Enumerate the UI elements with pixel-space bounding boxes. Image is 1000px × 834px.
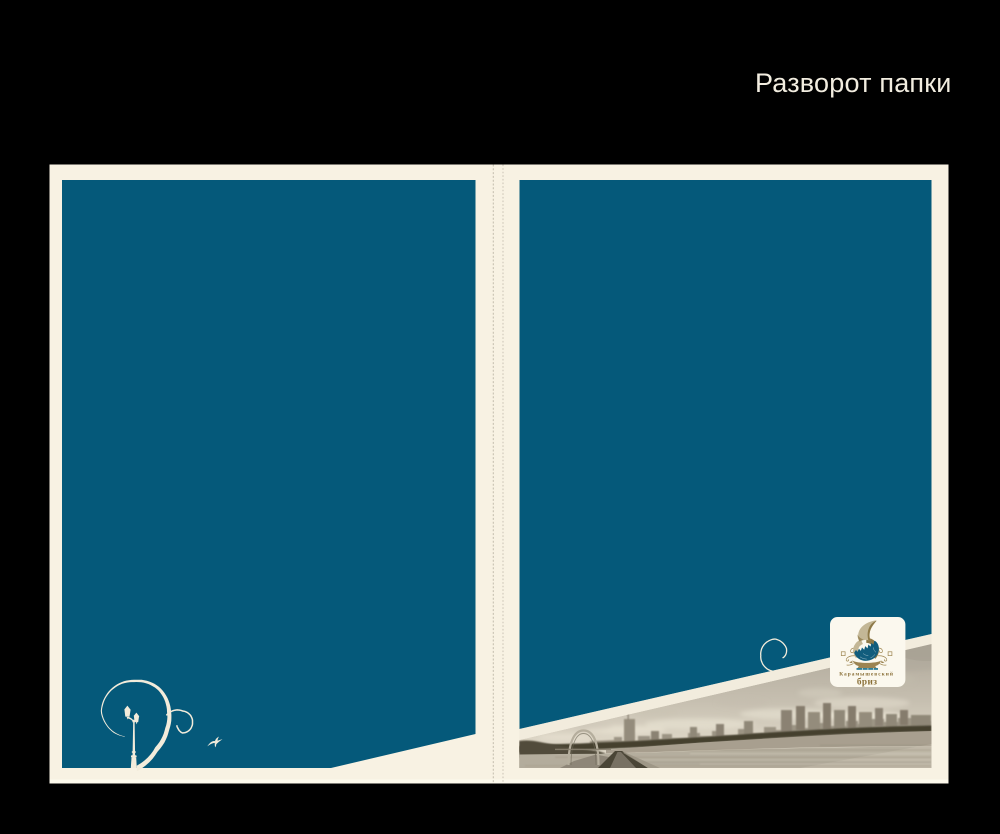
svg-text:бриз: бриз	[857, 677, 878, 688]
svg-text:Карамышевский: Карамышевский	[839, 670, 894, 677]
